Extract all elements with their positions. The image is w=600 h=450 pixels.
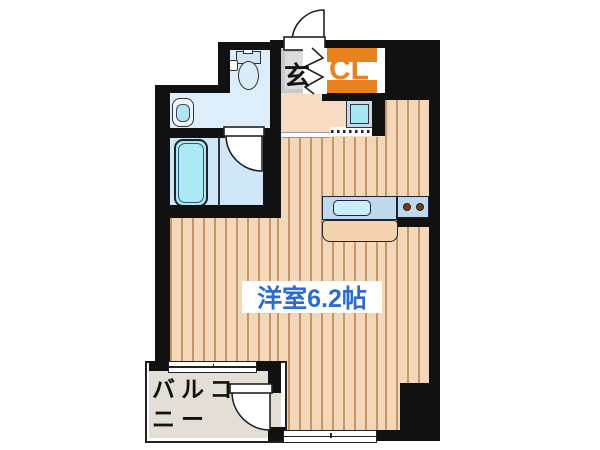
floor-boundary-strip [277,132,330,138]
toilet-flush-handle [229,60,238,71]
balcony-label-line2: ニー [152,404,239,434]
wall [400,383,440,441]
wall [155,85,170,371]
main-room-label-text: 洋室6.2帖 [257,279,367,315]
wall [155,205,281,218]
washer-boundary-dotted [330,127,377,136]
washbasin-bowl [176,104,190,122]
wall [322,93,385,101]
bathtub-rim [178,143,204,203]
wall [170,128,225,138]
stove-base [397,218,429,227]
bathroom-divider [218,138,220,205]
closet-label: CL [329,53,369,87]
burner-icon [403,203,411,211]
south-window [283,430,377,443]
burner-icon [416,203,424,211]
balcony-window [168,361,257,373]
window-tick [330,433,332,438]
toilet-bowl [238,61,259,90]
balcony-label-line1: バルコ [152,374,239,404]
wall [270,42,281,138]
dotted-line [331,130,376,133]
entrance-label: 玄 [284,56,310,93]
balcony-label: バルコ ニー [152,374,239,434]
wall [429,40,440,441]
wall [268,361,281,393]
bathroom-door-leaf [224,127,264,136]
entrance-door-swing [292,10,324,42]
stove [397,196,429,218]
window-tick [213,364,215,369]
floor-plan: 玄 CL 洋室6.2帖 バルコ ニー [0,0,600,450]
wall [316,40,385,48]
main-room-label: 洋室6.2帖 [242,281,382,313]
counter-table [322,220,398,242]
kitchen-sink [333,200,371,216]
washing-machine-pan-inner [350,104,369,124]
wall [372,101,385,136]
